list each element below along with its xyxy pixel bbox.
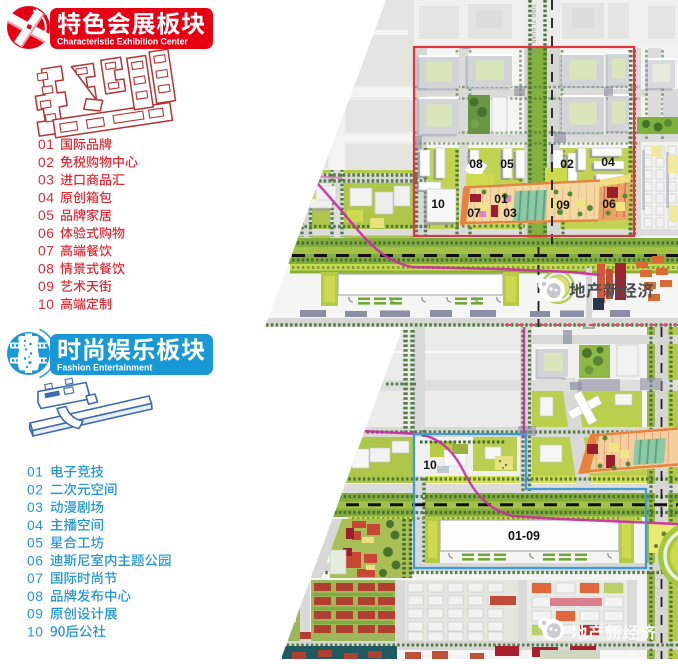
svg-text:02: 02 xyxy=(560,157,574,171)
svg-text:03: 03 xyxy=(503,206,517,220)
svg-text:10: 10 xyxy=(431,197,445,211)
svg-text:01: 01 xyxy=(494,192,508,206)
svg-text:09: 09 xyxy=(27,607,44,622)
svg-text:09: 09 xyxy=(38,279,55,294)
svg-text:02: 02 xyxy=(38,155,55,170)
svg-text:08: 08 xyxy=(38,261,55,276)
svg-text:07: 07 xyxy=(38,244,55,259)
svg-text:03: 03 xyxy=(38,173,55,188)
svg-text:04: 04 xyxy=(601,155,615,169)
svg-text:06: 06 xyxy=(38,226,55,241)
svg-text:07: 07 xyxy=(27,571,44,586)
svg-text:10: 10 xyxy=(423,458,437,472)
svg-text:10: 10 xyxy=(38,297,55,312)
svg-text:04: 04 xyxy=(38,190,55,205)
svg-text:10: 10 xyxy=(27,624,44,639)
svg-text:Characteristic Exhibition Cent: Characteristic Exhibition Center xyxy=(57,37,188,47)
svg-text:01-09: 01-09 xyxy=(508,529,540,543)
svg-text:05: 05 xyxy=(500,157,514,171)
svg-text:01: 01 xyxy=(27,465,44,480)
svg-text:08: 08 xyxy=(469,157,483,171)
svg-text:04: 04 xyxy=(27,518,44,533)
svg-text:Fashion Entertainment: Fashion Entertainment xyxy=(57,363,152,373)
svg-text:02: 02 xyxy=(27,482,44,497)
svg-text:05: 05 xyxy=(38,208,55,223)
svg-text:07: 07 xyxy=(467,206,481,220)
svg-text:01: 01 xyxy=(38,137,55,152)
svg-text:06: 06 xyxy=(602,197,616,211)
svg-text:09: 09 xyxy=(556,198,570,212)
svg-text:08: 08 xyxy=(27,589,44,604)
svg-text:06: 06 xyxy=(27,553,44,568)
svg-text:03: 03 xyxy=(27,500,44,515)
svg-text:05: 05 xyxy=(27,536,44,551)
